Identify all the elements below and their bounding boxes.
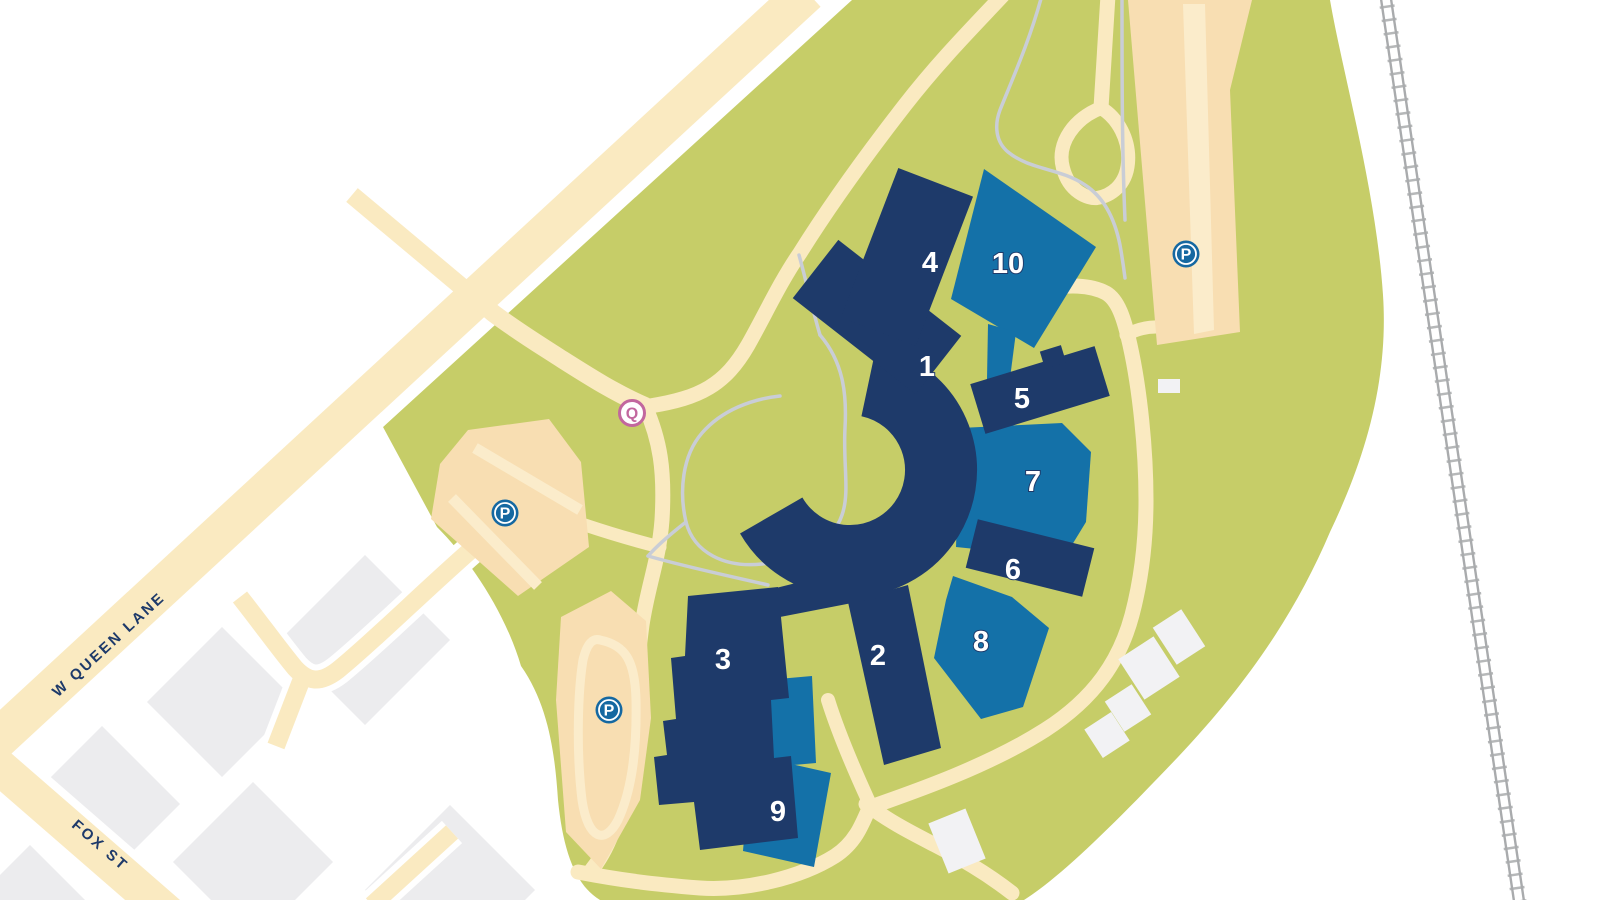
transit-stop-marker[interactable]: Q [620, 401, 645, 426]
svg-text:P: P [500, 506, 511, 523]
building-label-4: 4 [922, 247, 938, 279]
building-label-10: 10 [992, 248, 1024, 280]
loop-road-stem [1101, 0, 1108, 108]
svg-text:P: P [1181, 247, 1192, 264]
svg-text:P: P [604, 703, 615, 720]
building-label-5: 5 [1014, 383, 1030, 415]
building-label-3: 3 [715, 644, 731, 676]
parking-marker[interactable]: P [596, 697, 623, 724]
campus-map: 1 2 3 4 5 6 7 8 9 10 W QUEEN LANE FOX ST… [0, 0, 1600, 900]
svg-text:Q: Q [626, 406, 638, 423]
parking-marker[interactable]: P [492, 500, 519, 527]
building-label-9: 9 [770, 796, 786, 828]
building-label-7: 7 [1025, 466, 1041, 498]
building-label-8: 8 [973, 626, 989, 658]
parking-marker[interactable]: P [1173, 241, 1200, 268]
building-label-6: 6 [1005, 554, 1021, 586]
building-label-2: 2 [870, 640, 886, 672]
building-label-1: 1 [919, 351, 935, 383]
